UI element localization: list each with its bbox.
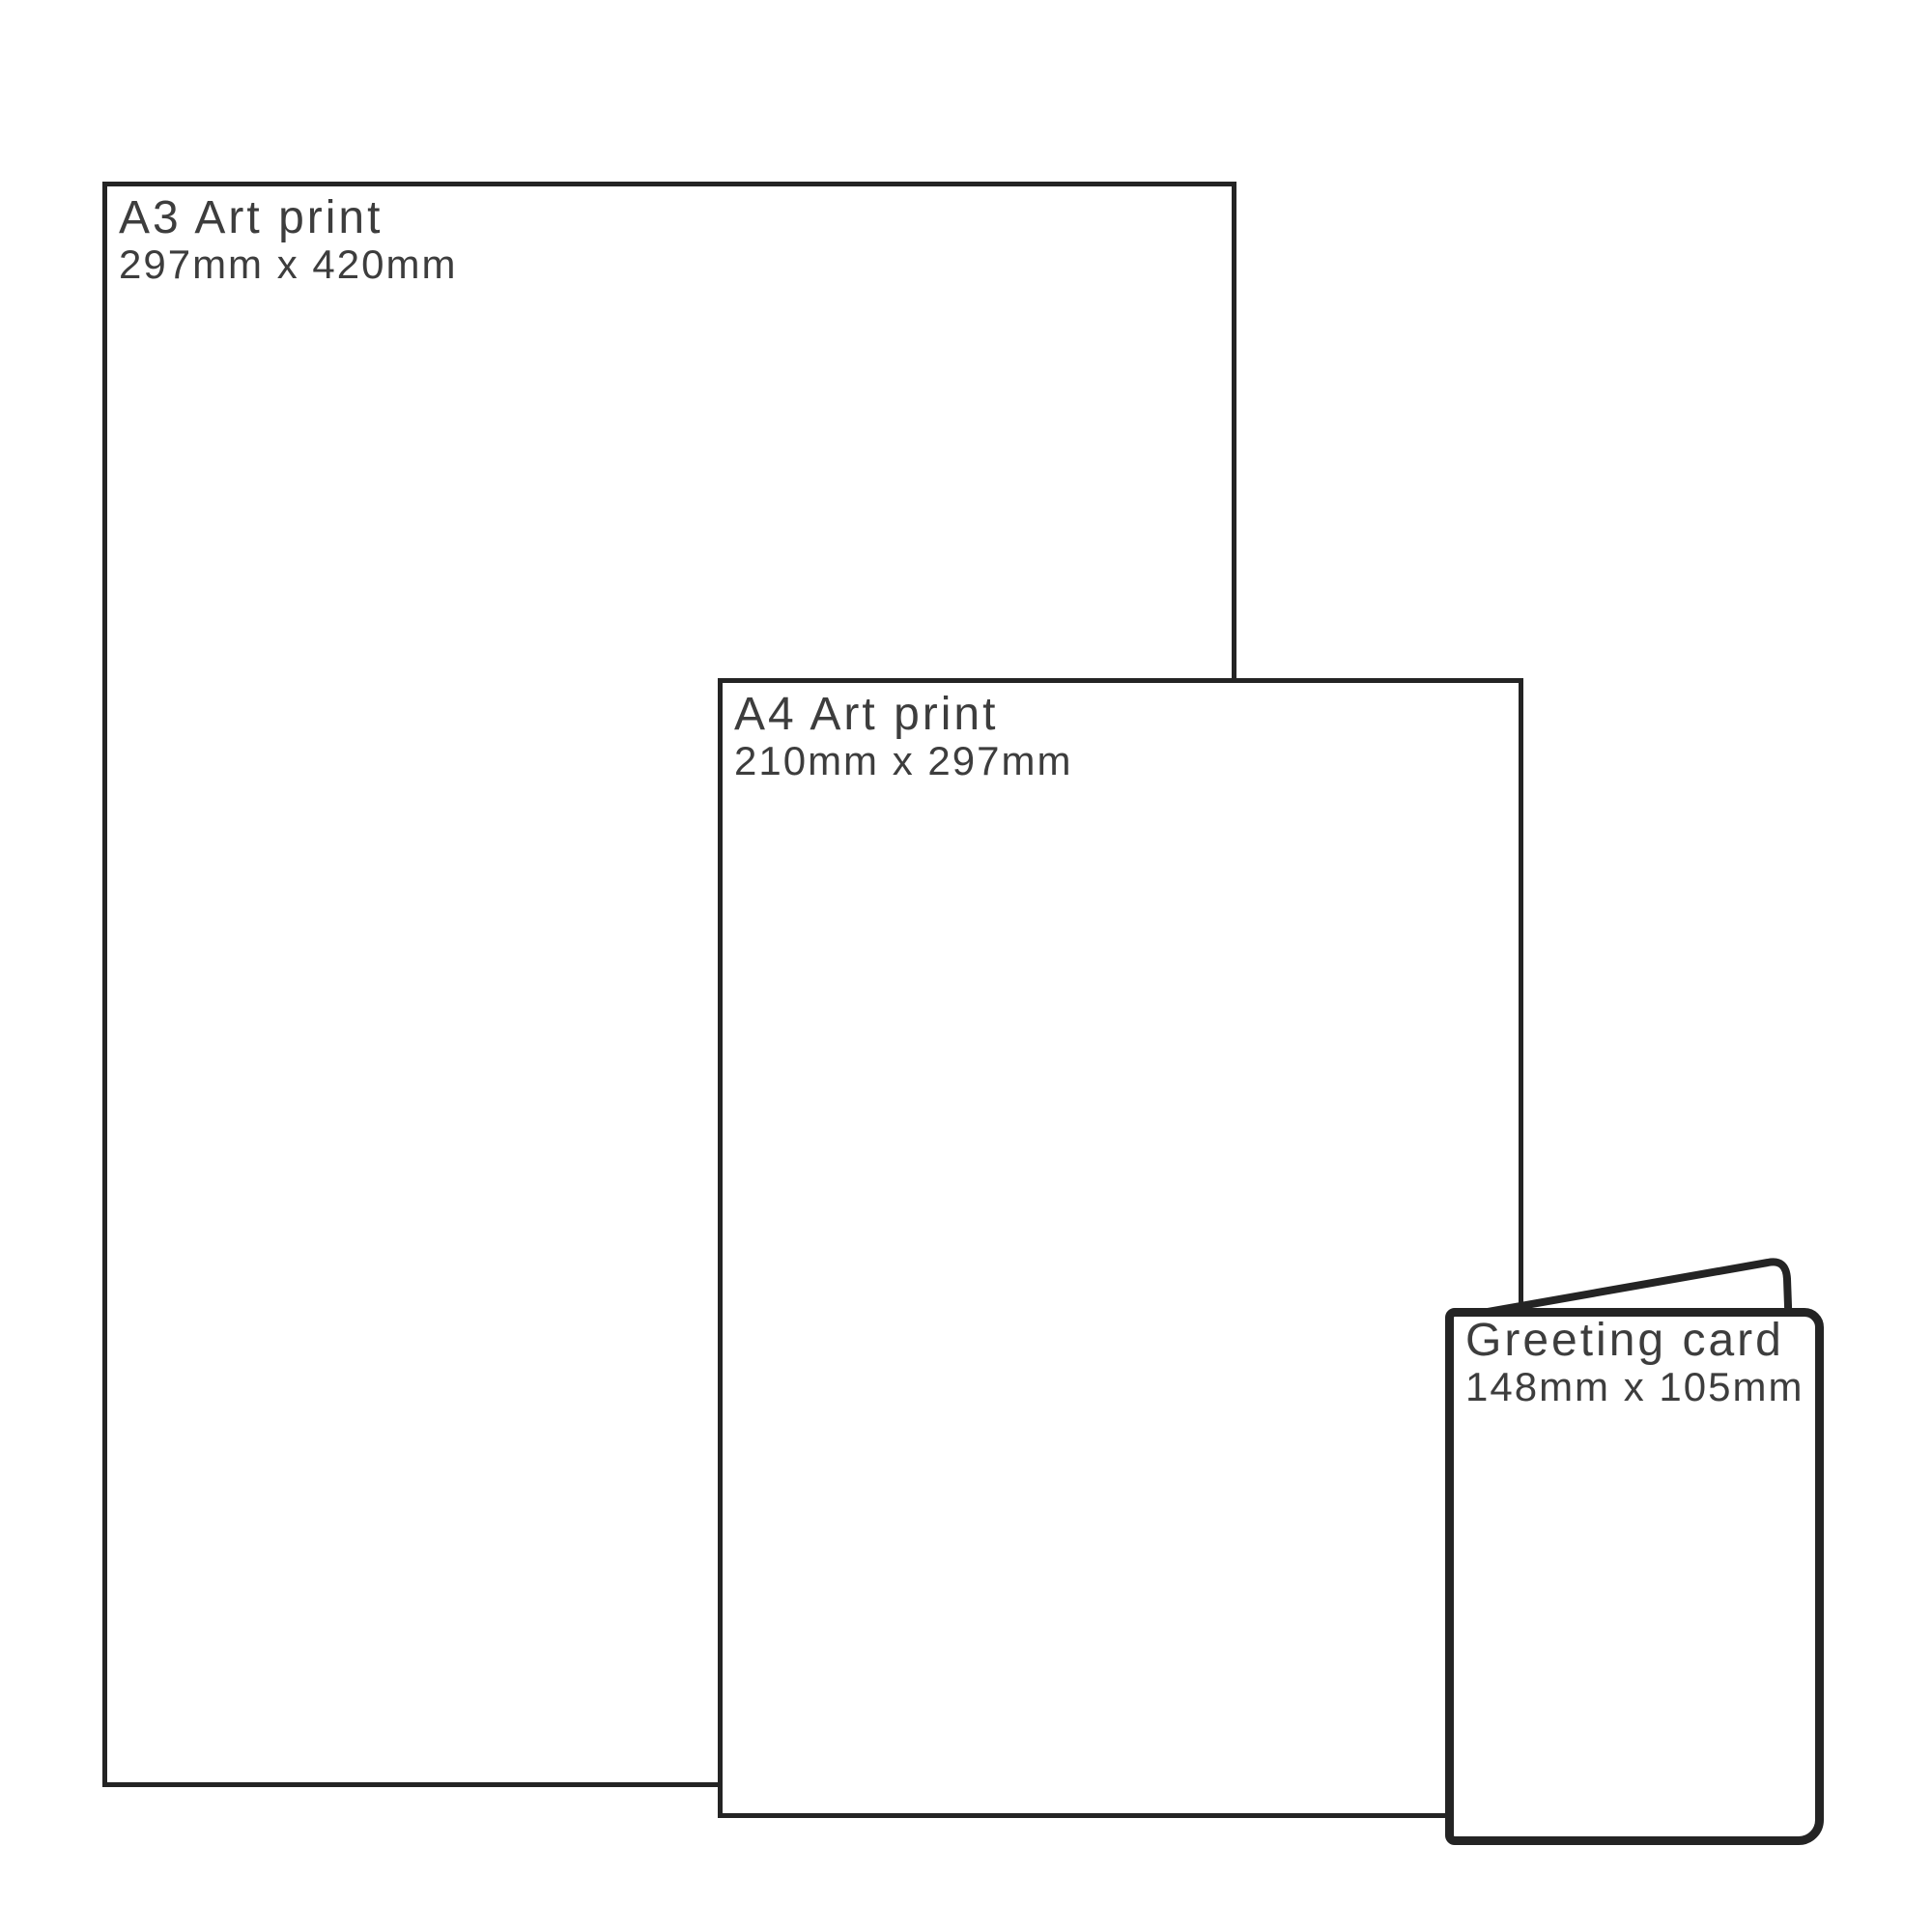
greeting-card-label: Greeting card 148mm x 105mm [1454,1317,1815,1409]
greeting-card-outline: Greeting card 148mm x 105mm [1445,1308,1824,1845]
a3-label: A3 Art print 297mm x 420mm [107,186,1232,287]
greeting-card-title: Greeting card [1465,1317,1805,1365]
a3-title: A3 Art print [119,194,1222,242]
greeting-card-dimensions: 148mm x 105mm [1465,1365,1805,1409]
a4-dimensions: 210mm x 297mm [734,739,1509,783]
a4-label: A4 Art print 210mm x 297mm [723,683,1519,783]
size-comparison-diagram: A3 Art print 297mm x 420mm A4 Art print … [0,0,1932,1932]
a3-dimensions: 297mm x 420mm [119,242,1222,287]
a4-title: A4 Art print [734,691,1509,739]
